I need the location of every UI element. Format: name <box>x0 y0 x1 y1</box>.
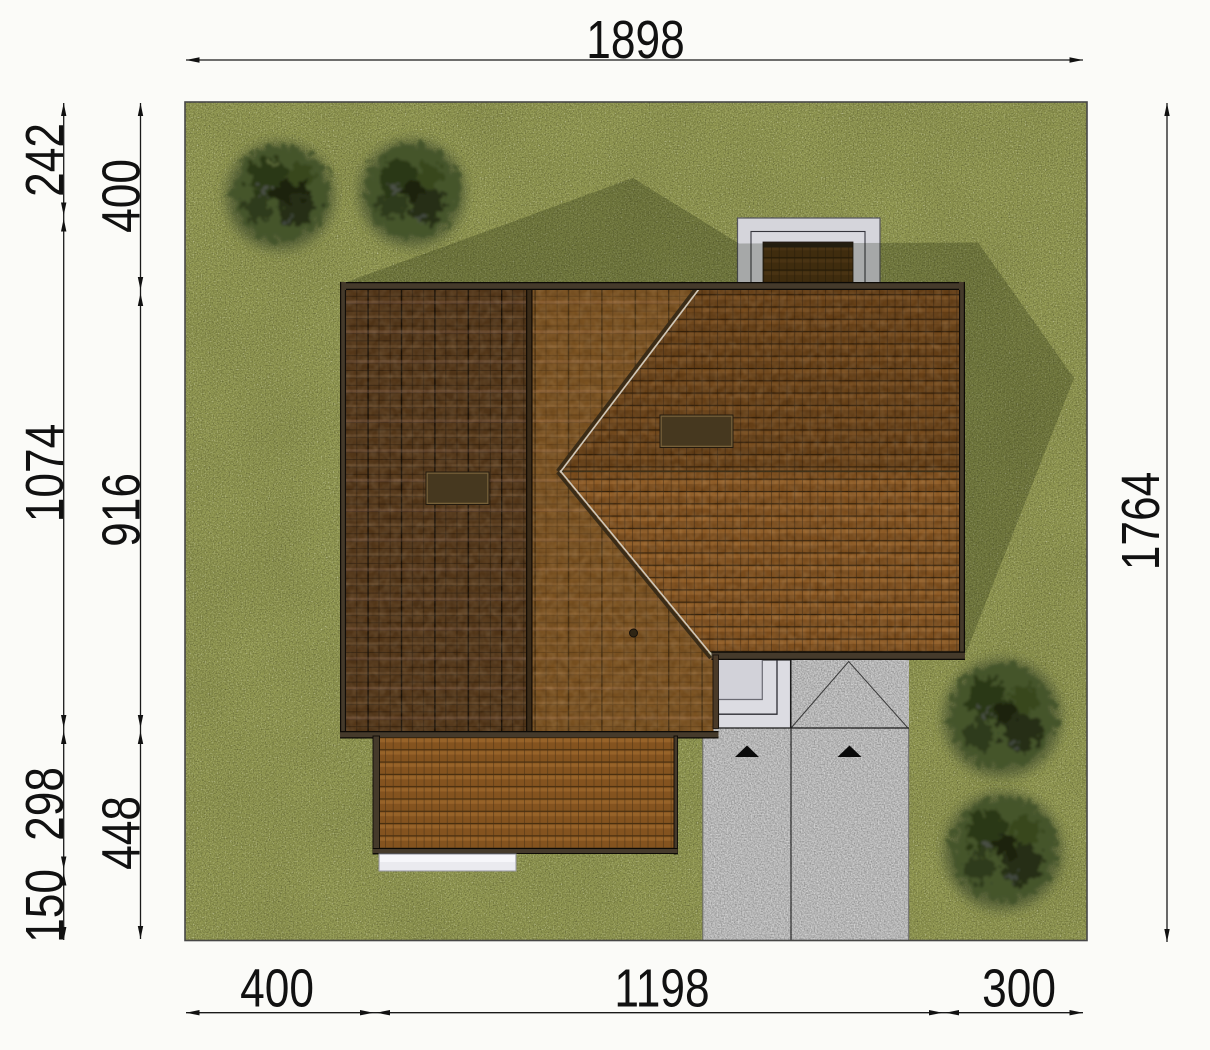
svg-text:242: 242 <box>15 123 75 197</box>
svg-text:1764: 1764 <box>1111 472 1171 570</box>
svg-text:1898: 1898 <box>586 10 684 70</box>
svg-text:400: 400 <box>240 958 314 1018</box>
svg-text:1074: 1074 <box>15 424 75 522</box>
svg-text:150: 150 <box>15 869 75 943</box>
svg-text:1198: 1198 <box>614 958 709 1018</box>
svg-text:300: 300 <box>982 958 1056 1018</box>
svg-text:298: 298 <box>15 767 75 841</box>
svg-text:916: 916 <box>91 473 151 547</box>
svg-text:400: 400 <box>91 159 151 233</box>
svg-text:448: 448 <box>91 796 151 870</box>
